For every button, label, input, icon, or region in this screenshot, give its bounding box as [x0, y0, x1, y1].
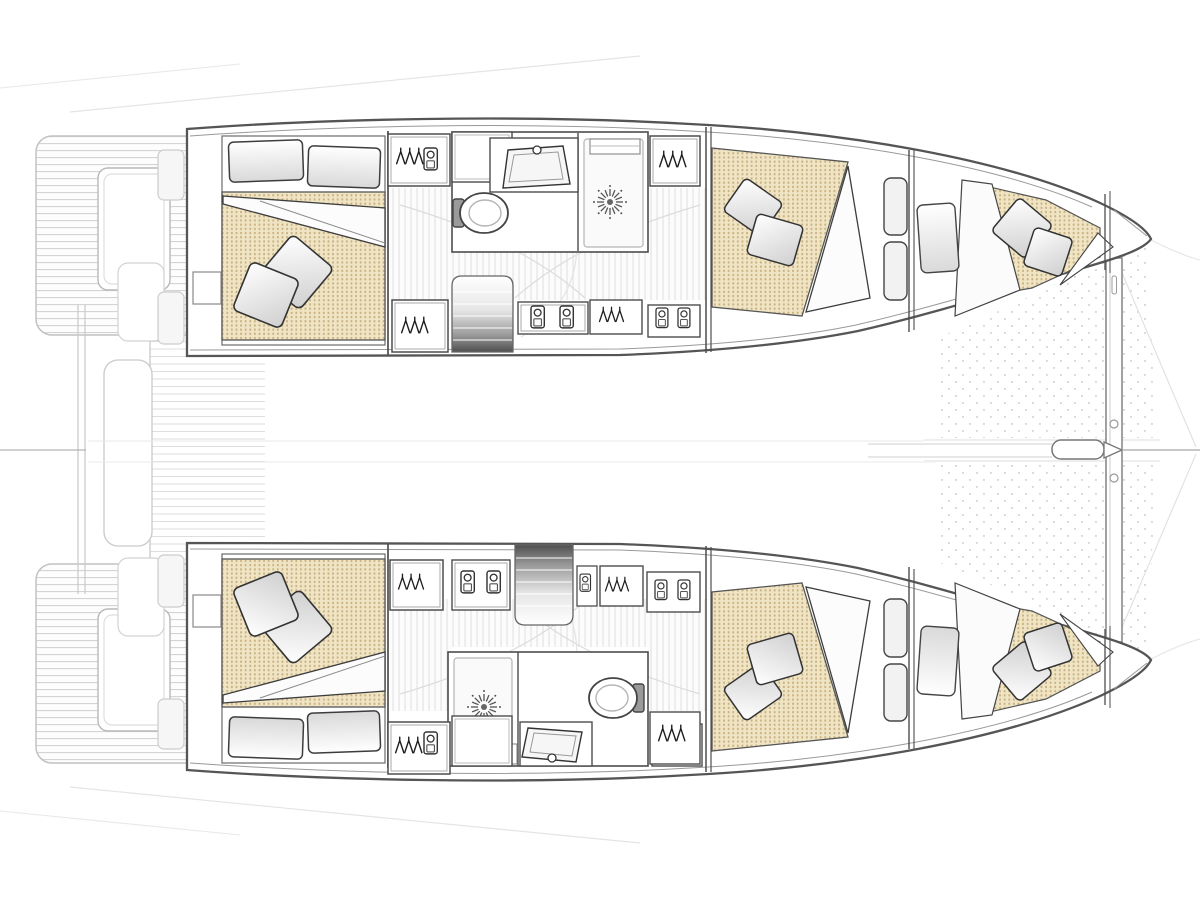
- deck-locker: [118, 263, 164, 341]
- jar-icon: [531, 306, 544, 328]
- berth-cushion: [884, 178, 907, 235]
- catamaran-layout-page: [0, 0, 1200, 899]
- shower-drain-icon: [593, 185, 627, 219]
- toilet-icon: [589, 678, 644, 718]
- corridor-floor: [390, 188, 452, 300]
- transom-step: [158, 292, 184, 344]
- locker: [452, 716, 512, 766]
- faucet-icon: [548, 754, 556, 762]
- boarding-walkway: [150, 338, 265, 560]
- transom-step: [158, 150, 184, 200]
- deck-edge-line: [70, 56, 640, 112]
- aft-cabin: [193, 131, 388, 355]
- deck-edge-line: [70, 787, 640, 843]
- jar-icon: [424, 148, 437, 170]
- jar-icon: [560, 306, 573, 328]
- pillow: [917, 203, 960, 273]
- beam-bolt: [1110, 420, 1118, 428]
- jar-icon: [678, 580, 690, 600]
- faucet-icon: [533, 146, 541, 154]
- corridor-floor: [648, 188, 710, 300]
- wardrobe: [590, 300, 642, 334]
- deck-edge-line: [0, 64, 240, 88]
- jar-icon: [678, 308, 690, 328]
- catamaran-layout-plan: [0, 0, 1200, 899]
- walkway-hatch: [104, 360, 152, 546]
- deck-locker: [118, 558, 164, 636]
- pillow: [307, 146, 380, 188]
- jar-icon: [580, 574, 591, 591]
- bowsprit: [1052, 440, 1104, 459]
- pillow: [228, 140, 303, 183]
- berth-cushion: [884, 242, 907, 300]
- beam-bolt: [1110, 474, 1118, 482]
- deck-edge-line: [0, 811, 240, 835]
- jar-icon: [461, 571, 474, 593]
- jar-icon: [655, 580, 667, 600]
- beam-fitting: [1112, 276, 1117, 294]
- shelf-locker: [518, 302, 588, 334]
- jar-icon: [487, 571, 500, 593]
- jar-icon: [656, 308, 668, 328]
- jar-icon: [424, 732, 437, 754]
- wardrobe: [392, 300, 448, 352]
- toilet-icon: [453, 193, 508, 233]
- bedside-locker: [193, 272, 221, 304]
